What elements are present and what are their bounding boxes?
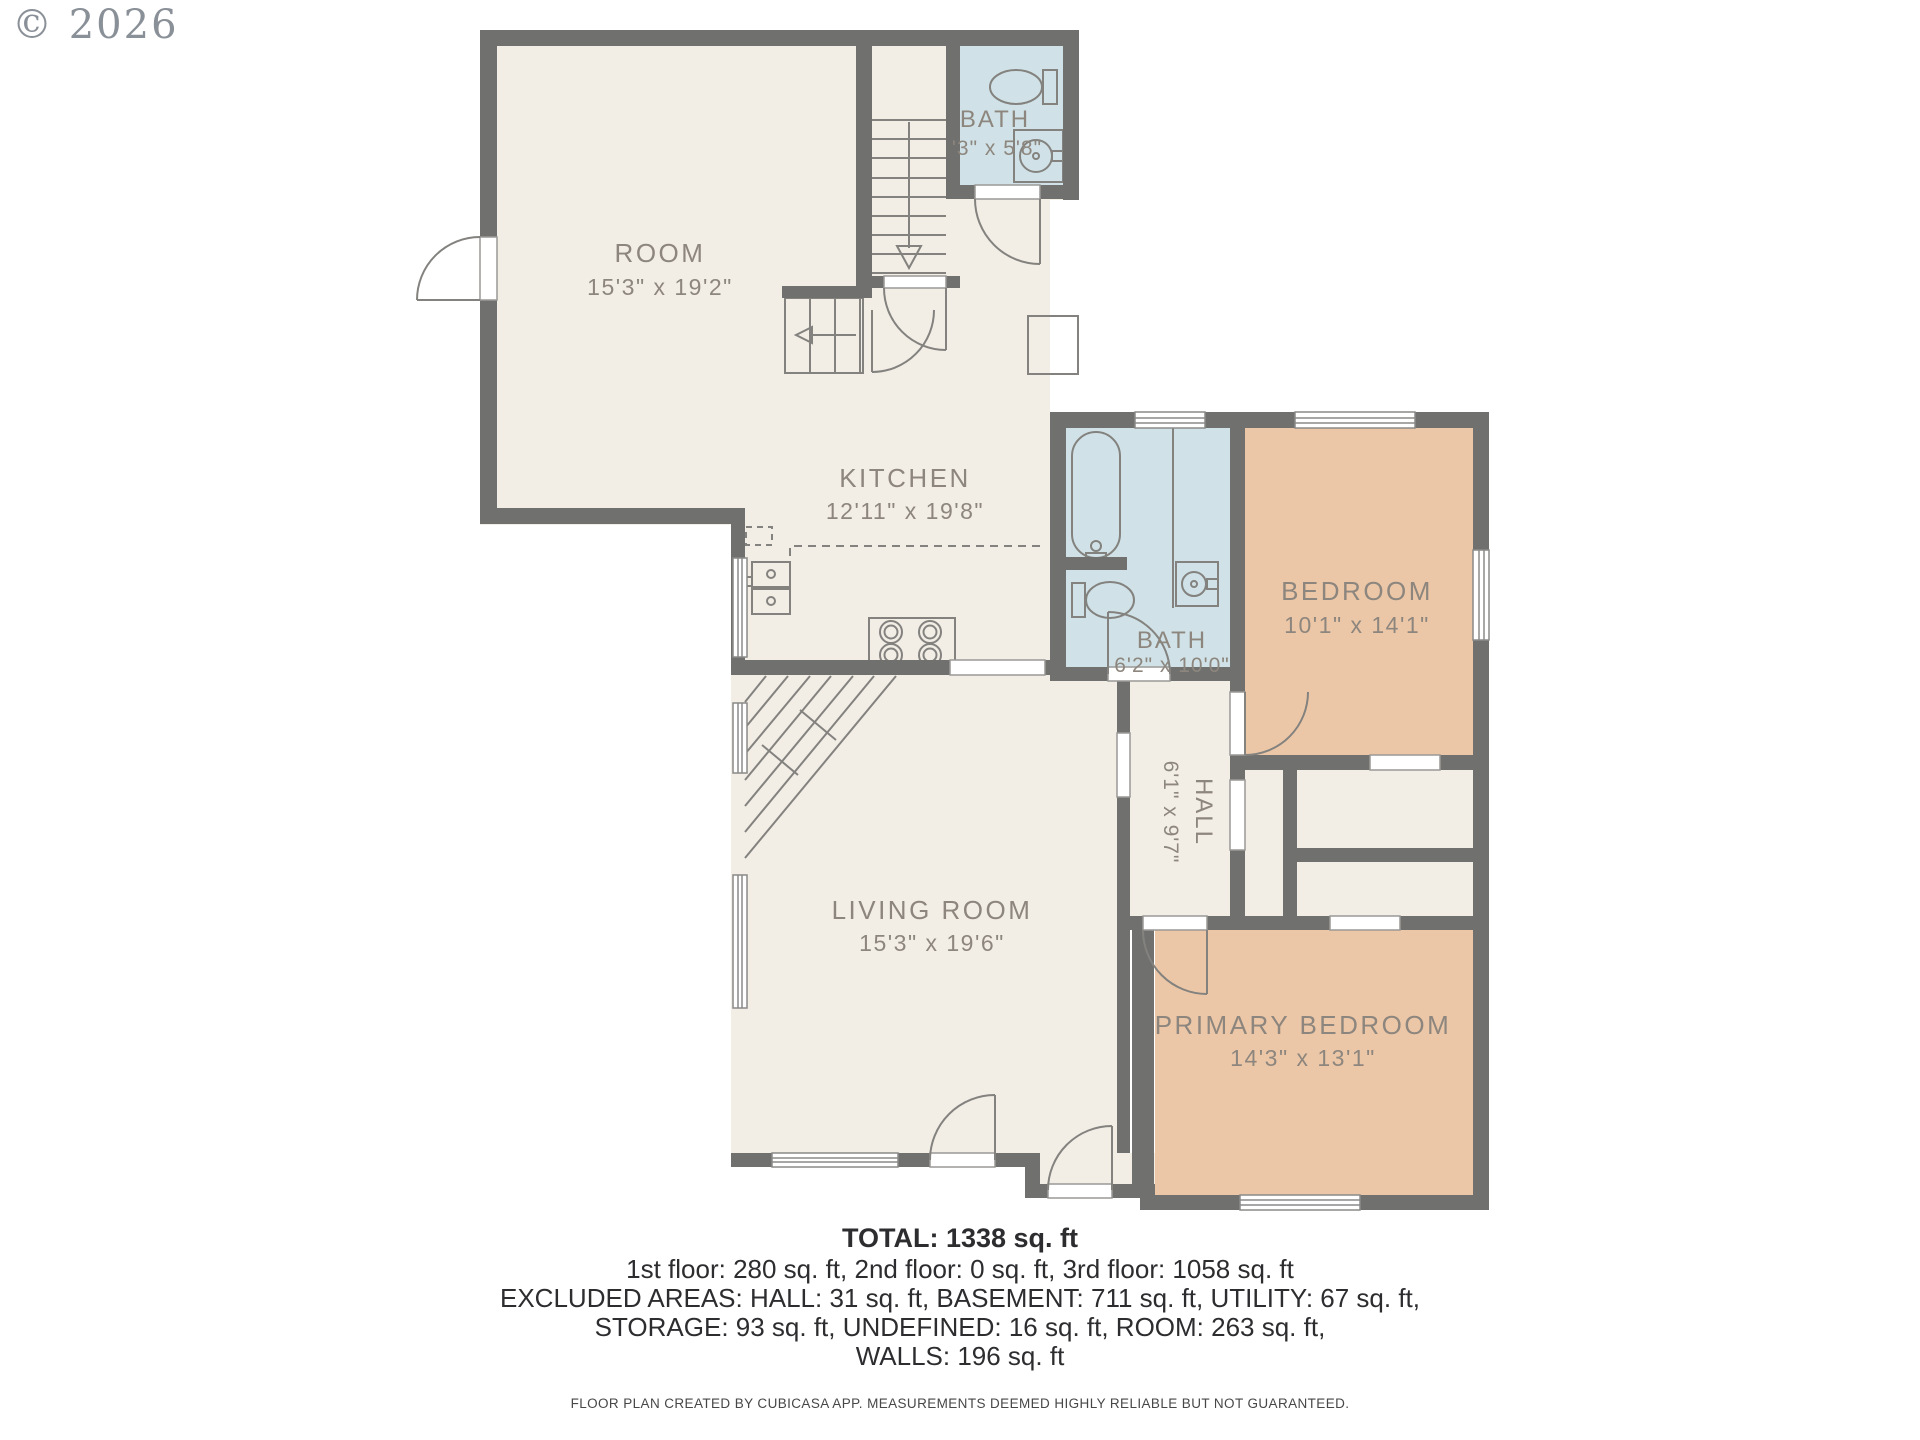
disclaimer: FLOOR PLAN CREATED BY CUBICASA APP. MEAS… — [0, 1396, 1920, 1411]
wall — [1050, 428, 1066, 680]
closet-opening — [1330, 916, 1400, 930]
living-room-dims: 15'3" x 19'6" — [859, 930, 1005, 956]
wall — [1440, 755, 1489, 770]
bedroom-dims: 10'1" x 14'1" — [1284, 612, 1430, 638]
closet-floor — [1233, 755, 1473, 916]
primary-bedroom-dims: 14'3" x 13'1" — [1230, 1045, 1376, 1071]
window — [733, 875, 747, 1008]
wall — [1025, 1184, 1048, 1198]
wall — [946, 185, 975, 199]
bath-upper-label: BATH — [960, 106, 1030, 133]
bath-main-dims: 6'2" x 10'0" — [1114, 654, 1230, 677]
closet-opening — [1370, 755, 1440, 770]
wall — [1207, 916, 1330, 930]
copyright-watermark: © 2026 — [12, 2, 179, 48]
room-label: ROOM — [615, 238, 706, 268]
wall — [1283, 770, 1297, 916]
wall — [1230, 755, 1245, 780]
tub-ledge — [1066, 557, 1127, 570]
closet-opening — [1230, 780, 1245, 850]
window — [1240, 1195, 1360, 1210]
wall — [946, 46, 960, 185]
hall-dims: 6'1" x 9'7" — [1159, 761, 1182, 864]
wall — [1050, 667, 1108, 681]
hall-label: HALL — [1190, 778, 1217, 846]
wall — [1063, 30, 1079, 200]
wall — [1050, 412, 1489, 428]
wall — [1117, 797, 1130, 1153]
wall — [480, 508, 745, 524]
wall — [782, 286, 872, 298]
kitchen-floor — [731, 525, 1056, 675]
wall — [946, 276, 960, 288]
excluded-areas-2: STORAGE: 93 sq. ft, UNDEFINED: 16 sq. ft… — [0, 1313, 1920, 1342]
excluded-areas-1: EXCLUDED AREAS: HALL: 31 sq. ft, BASEMEN… — [0, 1284, 1920, 1313]
door-opening — [930, 1153, 995, 1167]
door-opening — [1048, 1184, 1112, 1198]
window — [1295, 412, 1415, 428]
wall — [1400, 916, 1489, 930]
window — [772, 1153, 898, 1167]
wall — [1473, 412, 1489, 1210]
wall — [731, 660, 950, 675]
wall — [480, 30, 1079, 46]
room-dims: 15'3" x 19'2" — [587, 274, 733, 300]
wall — [872, 276, 884, 288]
floor-plan: ROOM 15'3" x 19'2" BATH '3" x 5'8" KITCH… — [0, 0, 1920, 1440]
kitchen-label: KITCHEN — [839, 463, 971, 493]
area-summary: TOTAL: 1338 sq. ft 1st floor: 280 sq. ft… — [0, 1224, 1920, 1371]
door-opening — [1230, 692, 1245, 755]
kitchen-dims: 12'11" x 19'8" — [826, 498, 984, 524]
door-opening — [975, 185, 1040, 199]
door-opening — [884, 276, 946, 288]
total-area: TOTAL: 1338 sq. ft — [0, 1224, 1920, 1253]
wall — [1045, 660, 1056, 675]
window — [1473, 550, 1489, 640]
door-opening — [480, 237, 497, 300]
bath-main-label: BATH — [1137, 627, 1207, 654]
wall — [1297, 848, 1473, 862]
floor-areas: 1st floor: 280 sq. ft, 2nd floor: 0 sq. … — [0, 1255, 1920, 1284]
wall — [1245, 755, 1370, 770]
living-room-label: LIVING ROOM — [832, 895, 1033, 925]
window — [1135, 412, 1205, 428]
primary-bedroom-label: PRIMARY BEDROOM — [1155, 1010, 1452, 1040]
bedroom-label: BEDROOM — [1281, 576, 1433, 606]
wall — [1230, 850, 1245, 916]
wall — [1230, 412, 1245, 692]
passage-opening — [950, 660, 1045, 675]
passage-opening — [1117, 733, 1130, 797]
wall — [856, 46, 872, 298]
door-opening — [1143, 916, 1207, 930]
wall — [1132, 930, 1154, 1198]
excluded-areas-3: WALLS: 196 sq. ft — [0, 1342, 1920, 1371]
window — [733, 558, 747, 657]
bath-upper-dims: '3" x 5'8" — [952, 137, 1042, 160]
door-swing — [417, 237, 480, 300]
window — [733, 703, 747, 773]
